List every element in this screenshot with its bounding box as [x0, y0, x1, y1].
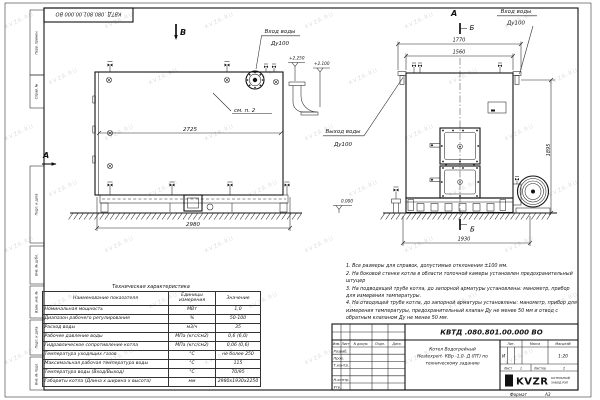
- lit-value: И: [502, 354, 506, 360]
- dim-label-1770: 1770: [453, 38, 466, 44]
- section-a-label: А: [42, 151, 49, 160]
- front-view: 2725 см. п. 2: [42, 24, 403, 231]
- note-4: 4. На отводящей трубе котла, до запорной…: [346, 300, 580, 322]
- table-row: Расход водым3/ч35: [43, 323, 261, 332]
- table-row: Температура воды (Вход/Выход)°С70/95: [43, 368, 261, 377]
- callout-inlet-side-dn: Ду100: [506, 21, 526, 27]
- frame-label: Инв. № дубл.: [35, 254, 39, 276]
- cell: 115: [216, 359, 261, 368]
- table-row: Номинальная мощностьМВт1,0: [43, 305, 261, 314]
- table-title: Техническая характеристика: [42, 284, 260, 290]
- col-header: Единицы измерения: [169, 292, 216, 305]
- cell: %: [169, 314, 216, 323]
- cell: °С: [169, 368, 216, 377]
- notes-block: 1. Все размеры для справок, допустимые о…: [346, 263, 580, 323]
- cell: 2980х1930х2250: [216, 377, 261, 386]
- ground-hatch: [69, 213, 302, 220]
- dim-label-2725: 2725: [183, 127, 197, 133]
- sign-row: Н.контр.: [334, 378, 350, 382]
- section-b-bottom-label: Б: [470, 226, 475, 234]
- callout-inlet-side: Вход воды: [501, 9, 532, 15]
- drain-valves: [108, 182, 290, 195]
- dim-label-1560: 1560: [453, 50, 466, 56]
- cell: Температура воды (Вход/Выход): [43, 368, 169, 377]
- cell: Температура уходящих газов: [43, 350, 169, 359]
- svg-text:+2.250: +2.250: [289, 56, 305, 61]
- section-b-top-label: Б: [470, 24, 475, 32]
- table-row: Температура уходящих газов°Сне более 250: [43, 350, 261, 359]
- sign-row: Т.контр.: [334, 364, 350, 368]
- cell: 1,0: [216, 305, 261, 314]
- format-value: А3: [544, 392, 551, 397]
- frame-label: Подп. и дата: [35, 194, 39, 216]
- mass-label: Масса: [530, 342, 540, 346]
- callout-inlet-dn: Ду100: [270, 41, 290, 47]
- frame-label: Перв. примен.: [35, 31, 39, 55]
- drawing-sheet: KVZR.RUKVZR.RUKVZR.RUKVZR.RUKVZR.RUKVZR.…: [0, 0, 600, 400]
- title-block: КВТД .080.801.00.000 ВО Изм. Лист N доку…: [332, 324, 578, 397]
- cell: 70/95: [216, 368, 261, 377]
- cell: Габариты котла (Длина х ширина х высота): [43, 377, 169, 386]
- cell: °С: [169, 350, 216, 359]
- lifting-eyes: [106, 77, 278, 168]
- cell: МПа (кгс/см2): [169, 341, 216, 350]
- col-header: Значение: [216, 292, 261, 305]
- table-header-row: Наименование показателя Единицы измерени…: [43, 292, 261, 305]
- format-label: Формат: [510, 392, 528, 397]
- callout-outlet-dn: Ду100: [333, 142, 353, 148]
- cell: Номинальная мощность: [43, 305, 169, 314]
- titleblock-doc-number: КВТД .080.801.00.000 ВО: [440, 329, 542, 337]
- callout-outlet: Выход воды: [325, 129, 361, 135]
- cell: °С: [169, 359, 216, 368]
- scale-label: Масштаб: [555, 342, 570, 346]
- sheet-value: 1: [520, 366, 522, 370]
- frame-label: Инв. № подл.: [35, 363, 39, 385]
- kvzr-logo: KVZR КОТЕЛЬНЫЙ ЗАВОД РЭП: [505, 375, 570, 388]
- titleblock-col: Подп.: [375, 342, 385, 346]
- side-view: 1770 1560 1895 1930 Б Б А: [381, 9, 558, 246]
- table-row: Максимальная рабочая температура воды°С1…: [43, 359, 261, 368]
- cell: Гидравлическое сопротивление котла: [43, 341, 169, 350]
- sign-row: Пров.: [334, 357, 344, 361]
- dim-label-2980: 2980: [186, 222, 200, 228]
- cell: 0,6 (6,0): [216, 332, 261, 341]
- cell: м3/ч: [169, 323, 216, 332]
- frame-label: Подп. и дата: [35, 327, 39, 349]
- tech-characteristics-table: Техническая характеристика Наименование …: [42, 284, 260, 387]
- svg-text:0.000: 0.000: [341, 199, 353, 204]
- svg-text:КОТЕЛЬНЫЙ: КОТЕЛЬНЫЙ: [551, 375, 570, 380]
- scale-value: 1:20: [558, 354, 568, 360]
- see-note-callout: см. п. 2: [234, 108, 256, 114]
- note-1: 1. Все размеры для справок, допустимые о…: [346, 263, 580, 270]
- sheets-label: Листов: [533, 366, 546, 370]
- lower-door: [430, 166, 480, 198]
- lit-label: Лит.: [506, 342, 514, 346]
- svg-text:KVZR: KVZR: [516, 377, 548, 388]
- view-a-label: А: [450, 9, 457, 18]
- note-2: 2. На боковой стенке котла в области топ…: [346, 271, 580, 285]
- table-row: Гидравлическое сопротивление котлаМПа (к…: [43, 341, 261, 350]
- product-name-line1: Котел Водогрейный: [429, 347, 476, 353]
- blower-fan: [513, 176, 550, 213]
- dim-label-1895: 1895: [546, 144, 552, 157]
- cell: Расход воды: [43, 323, 169, 332]
- cell: МВт: [169, 305, 216, 314]
- frame-label: Взам. инв. №: [35, 291, 39, 313]
- svg-text:ЗАВОД РЭП: ЗАВОД РЭП: [551, 381, 568, 385]
- frame-label: Справ. №: [35, 83, 39, 99]
- sheets-value: 2: [563, 366, 565, 370]
- dim-label-1930: 1930: [458, 237, 471, 243]
- stamp-doc-number: КВТД .080.801.00.000 ВО: [56, 11, 122, 17]
- ground-hatch: [381, 213, 552, 220]
- cell: 35: [216, 323, 261, 332]
- sign-row: Разраб.: [334, 349, 348, 353]
- cell: МПа (кгс/см2): [169, 332, 216, 341]
- note-3: 3. На подводящей трубе котла, до запорно…: [346, 286, 580, 300]
- titleblock-col: Дата: [391, 342, 400, 346]
- cell: 50-100: [216, 314, 261, 323]
- sign-row: Утв.: [334, 385, 342, 389]
- cell: Диапазон рабочего регулирования: [43, 314, 169, 323]
- sheet-label: Лист: [503, 366, 512, 370]
- table-row: Габариты котла (Длина х ширина х высота)…: [43, 377, 261, 386]
- view-b-label: В: [180, 28, 186, 37]
- upper-door: [430, 128, 480, 164]
- titleblock-col: Лист: [340, 342, 349, 346]
- col-header: Наименование показателя: [43, 292, 169, 305]
- cell: Рабочее давление воды: [43, 332, 169, 341]
- callout-inlet: Вход воды: [265, 29, 296, 35]
- titleblock-col: N докум.: [354, 342, 369, 346]
- product-name-line3: техническому заданию: [425, 362, 479, 367]
- inlet-flange: [246, 71, 264, 89]
- svg-text:+2.100: +2.100: [314, 61, 330, 66]
- cell: не более 250: [216, 350, 261, 359]
- cell: мм: [169, 377, 216, 386]
- cell: Максимальная рабочая температура воды: [43, 359, 169, 368]
- table-row: Диапазон рабочего регулирования%50-100: [43, 314, 261, 323]
- product-name-line2: Heatexpert- КВр -1,0- Д (ПТ) по: [417, 354, 488, 360]
- titleblock-col: Изм.: [333, 342, 341, 346]
- table-row: Рабочее давление водыМПа (кгс/см2)0,6 (6…: [43, 332, 261, 341]
- chimney-outlet: [289, 82, 318, 115]
- cell: 0,06 (0,6): [216, 341, 261, 350]
